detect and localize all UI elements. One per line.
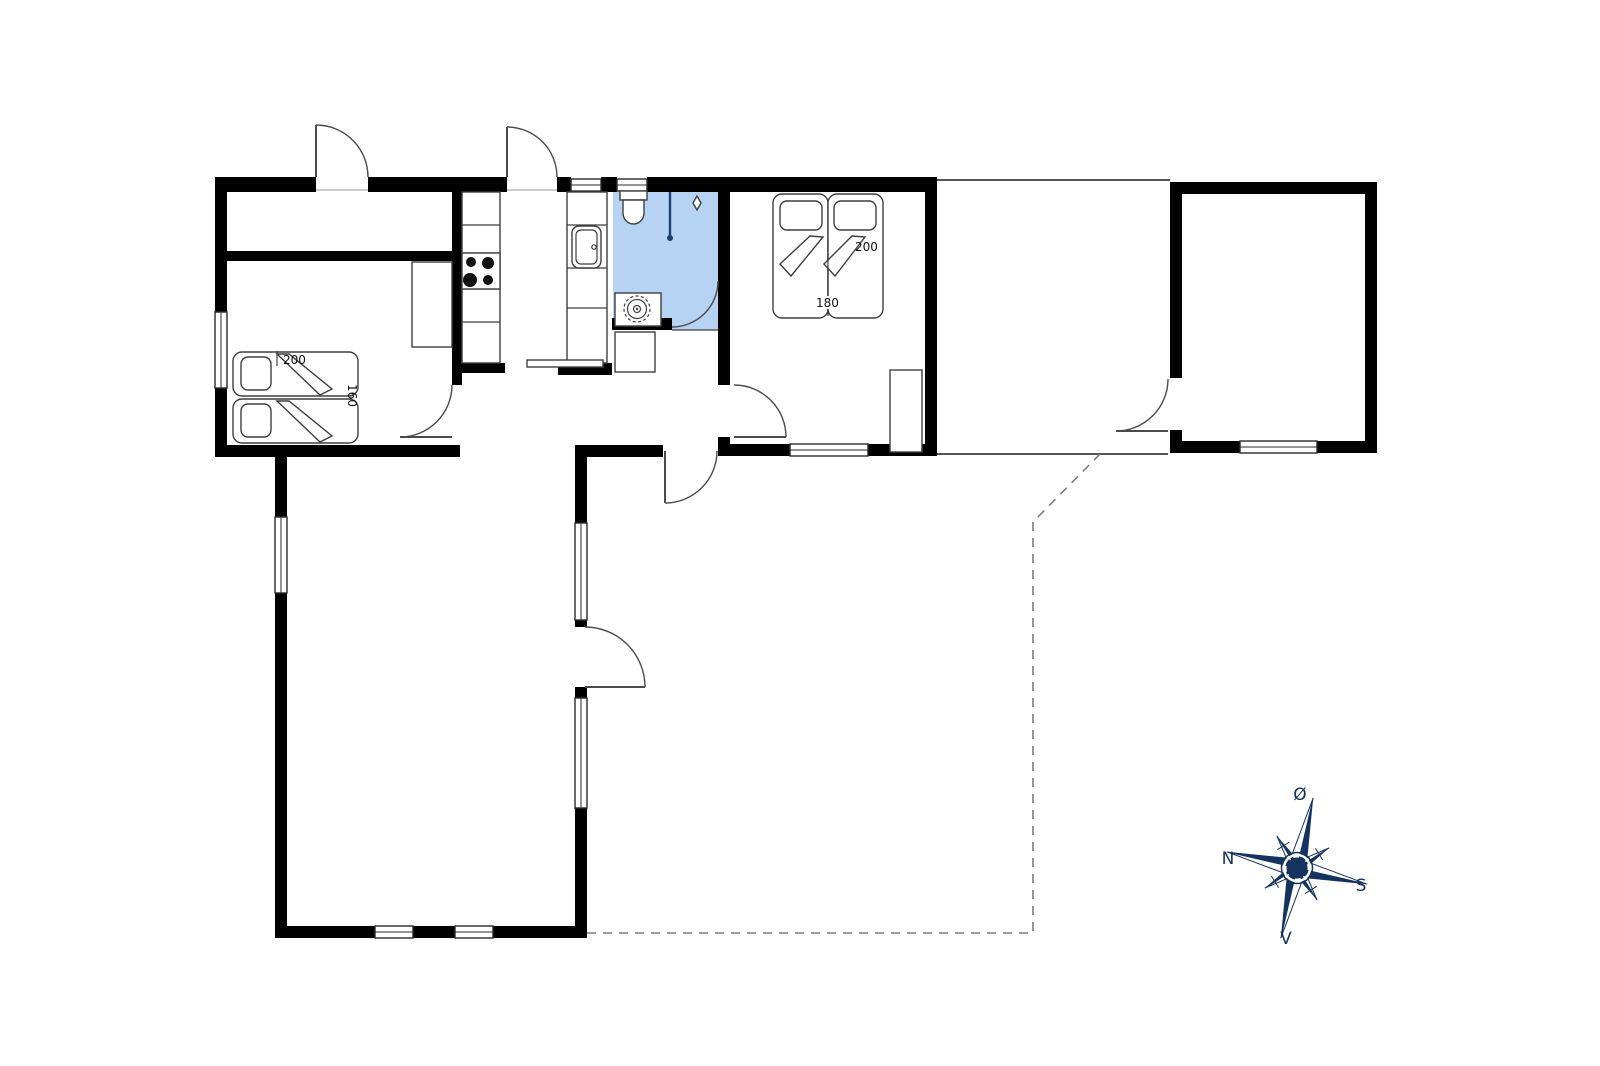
doors	[316, 125, 1168, 687]
wall-top-3	[557, 177, 571, 192]
floor-plan-canvas: 200 160 200 180	[0, 0, 1600, 1066]
wall-living-right-4	[575, 808, 587, 938]
toilet-icon	[620, 191, 647, 224]
wall-top-5	[647, 177, 937, 192]
compass-label-west: V	[1280, 929, 1292, 949]
compass-label-north: N	[1222, 849, 1235, 869]
hall-terrace-door	[665, 451, 717, 503]
wall-bedroom1-right	[452, 190, 462, 385]
bedroom-2: 200 180	[773, 194, 922, 452]
terrace-dashed-boundary	[587, 454, 1100, 933]
bedroom1-bed: 200 160	[233, 351, 359, 443]
wall-living-right-1	[575, 445, 587, 523]
compass-rose: Ø N S V	[1211, 782, 1384, 955]
hall-closet	[615, 332, 655, 372]
living-terrace-door	[585, 627, 645, 687]
entry-door-2	[507, 127, 557, 190]
washing-machine-icon	[615, 293, 661, 326]
wall-annex-left-stub	[1170, 430, 1182, 453]
pillow	[834, 201, 876, 230]
wall-kitchen-stub	[462, 363, 505, 373]
bed2-length-label: 200	[855, 240, 878, 254]
floor-plan: 200 160 200 180	[0, 0, 1600, 1066]
window-living-left	[275, 517, 287, 593]
entry-door-1	[316, 125, 368, 190]
window-kitchen-top	[571, 179, 601, 191]
pillow	[241, 357, 271, 390]
wall-annex-right	[1365, 194, 1377, 453]
bedroom2-bed: 200 180	[773, 194, 883, 318]
kitchen-counter-right	[567, 192, 607, 363]
wall-annex-top	[1170, 182, 1377, 194]
window-living-right-lower	[575, 698, 587, 808]
stove-icon	[462, 253, 500, 289]
bedroom2-closet	[890, 370, 922, 452]
wall-bedroom2-right	[925, 192, 937, 444]
carport-boundary	[937, 180, 1170, 454]
bed2-width-label: 180	[816, 296, 839, 310]
bedroom2-door	[734, 385, 786, 437]
pillow	[241, 404, 271, 437]
bed1-width-label: 160	[345, 384, 359, 407]
window-living-bottom-1	[375, 926, 413, 938]
wall-annex-left	[1170, 194, 1182, 378]
wall-living-bottom	[275, 926, 587, 938]
bed1-length-label: 200	[283, 353, 306, 367]
compass-label-south: S	[1356, 876, 1367, 896]
wall-living-right-3	[575, 687, 587, 698]
wall-living-left-1	[275, 448, 287, 517]
window-living-bottom-2	[455, 926, 493, 938]
window-bathroom-top	[617, 179, 647, 191]
bedroom1-closet	[412, 262, 452, 347]
bedroom-1: 200 160	[233, 262, 452, 443]
compass-label-east: Ø	[1293, 785, 1306, 805]
wall-top-1	[215, 177, 316, 192]
window-living-right-upper	[575, 523, 587, 620]
wall-bedroom2-left	[718, 190, 730, 385]
sink-icon	[572, 226, 601, 268]
wall-living-right-2	[575, 620, 587, 627]
wall-top-2	[368, 177, 507, 192]
compass-star	[1211, 782, 1384, 955]
wall-top-4	[601, 177, 617, 192]
windows	[215, 179, 1317, 938]
hall-sideboard	[527, 360, 603, 367]
window-bedroom2-bottom	[790, 444, 868, 456]
annex-door	[1116, 379, 1168, 431]
wall-living-left-2	[275, 593, 287, 938]
wall-bedroom1-bottom	[215, 445, 460, 457]
wall-entry-bottom	[215, 251, 462, 261]
window-annex-bottom	[1240, 441, 1317, 453]
pillow	[780, 201, 822, 230]
bedroom1-door	[400, 385, 452, 437]
wall-hall-bottom	[575, 445, 663, 457]
window-bedroom1-left	[215, 312, 227, 388]
